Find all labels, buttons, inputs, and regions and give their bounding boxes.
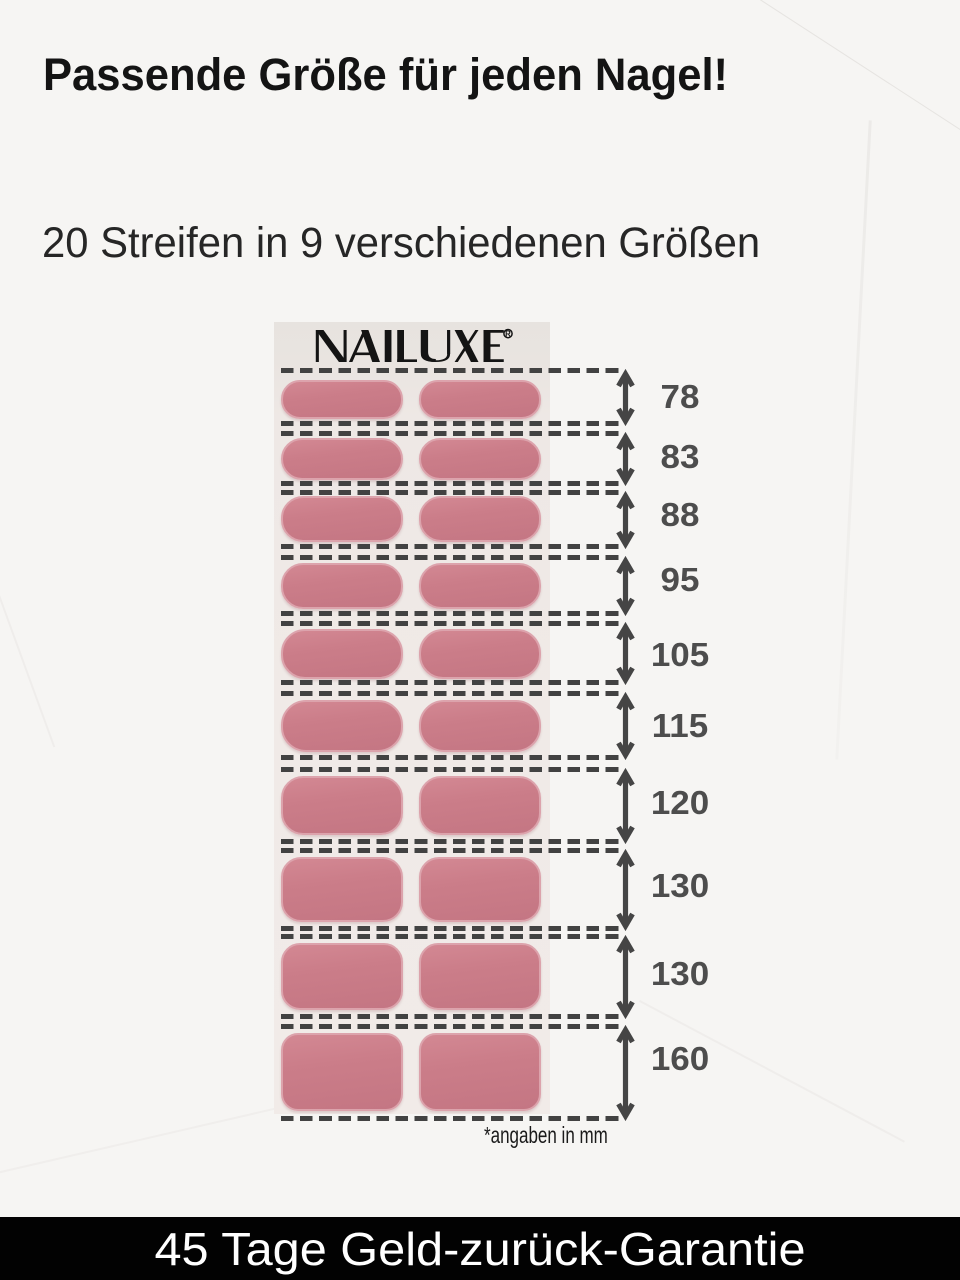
svg-text:R: R [505, 329, 511, 338]
